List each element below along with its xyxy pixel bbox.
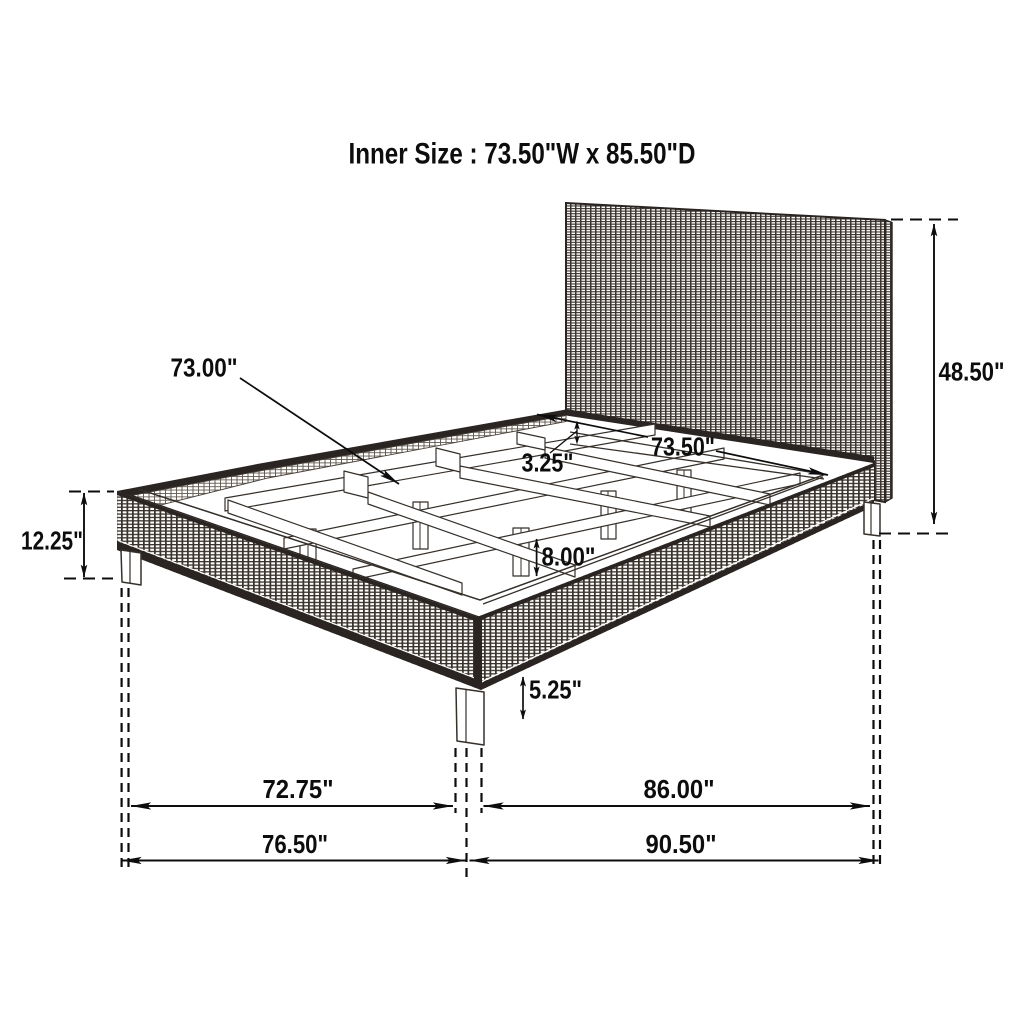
svg-text:Inner Size : 73.50"W x 85.50": Inner Size : 73.50"W x 85.50"D	[349, 138, 696, 171]
svg-text:72.75": 72.75"	[263, 774, 334, 804]
svg-text:8.00": 8.00"	[542, 542, 596, 572]
svg-text:73.00": 73.00"	[171, 353, 238, 383]
svg-text:86.00": 86.00"	[644, 774, 715, 804]
svg-text:76.50": 76.50"	[262, 829, 328, 859]
svg-text:73.50": 73.50"	[651, 432, 715, 462]
svg-text:3.25": 3.25"	[522, 448, 574, 478]
svg-text:90.50": 90.50"	[646, 829, 717, 859]
svg-text:48.50": 48.50"	[939, 357, 1005, 387]
svg-text:12.25": 12.25"	[21, 526, 83, 556]
svg-text:5.25": 5.25"	[529, 675, 582, 705]
